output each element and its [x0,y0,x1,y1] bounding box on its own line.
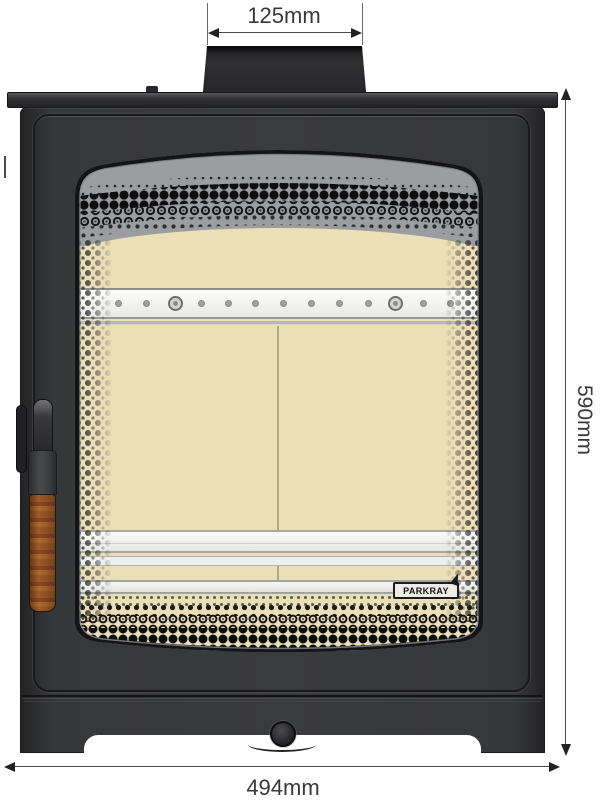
hinge-plate [16,405,27,473]
dim-height-label: 590mm [572,385,596,475]
glass-window: PARKRAY [75,150,483,657]
flue-collar [203,46,366,92]
stray-mark [4,156,6,178]
dim-width-label: 494mm [233,775,333,801]
dim-height-arrow-up-icon [561,88,571,100]
dim-width-line [9,766,555,767]
dim-width-arrow-left-icon [4,762,15,772]
dim-height-arrow-down-icon [561,744,571,756]
dim-flue-arrow-right-icon [351,28,362,38]
top-plate [7,92,558,108]
door-handle-wood-grip [29,494,56,612]
dim-flue-extension-left [207,3,208,45]
halftone-side-columns [75,150,483,657]
brand-logo-text: PARKRAY [403,586,449,596]
dim-flue-extension-right [362,3,363,45]
dim-height-line [565,96,566,746]
dim-flue-line [213,32,357,33]
door-bottom-seam [22,695,543,697]
door-handle-cap [33,399,53,453]
stove-technical-drawing: 125mm 590mm 494mm [0,0,600,809]
dim-flue-label: 125mm [234,3,334,29]
air-control-knob [270,721,296,747]
dim-flue-arrow-left-icon [208,28,219,38]
door-bottom-seam-highlight [22,698,543,699]
dim-width-arrow-right-icon [549,762,560,772]
brand-logo: PARKRAY [393,582,459,599]
door-handle-shaft [28,450,57,495]
base-top-highlight [24,701,541,702]
